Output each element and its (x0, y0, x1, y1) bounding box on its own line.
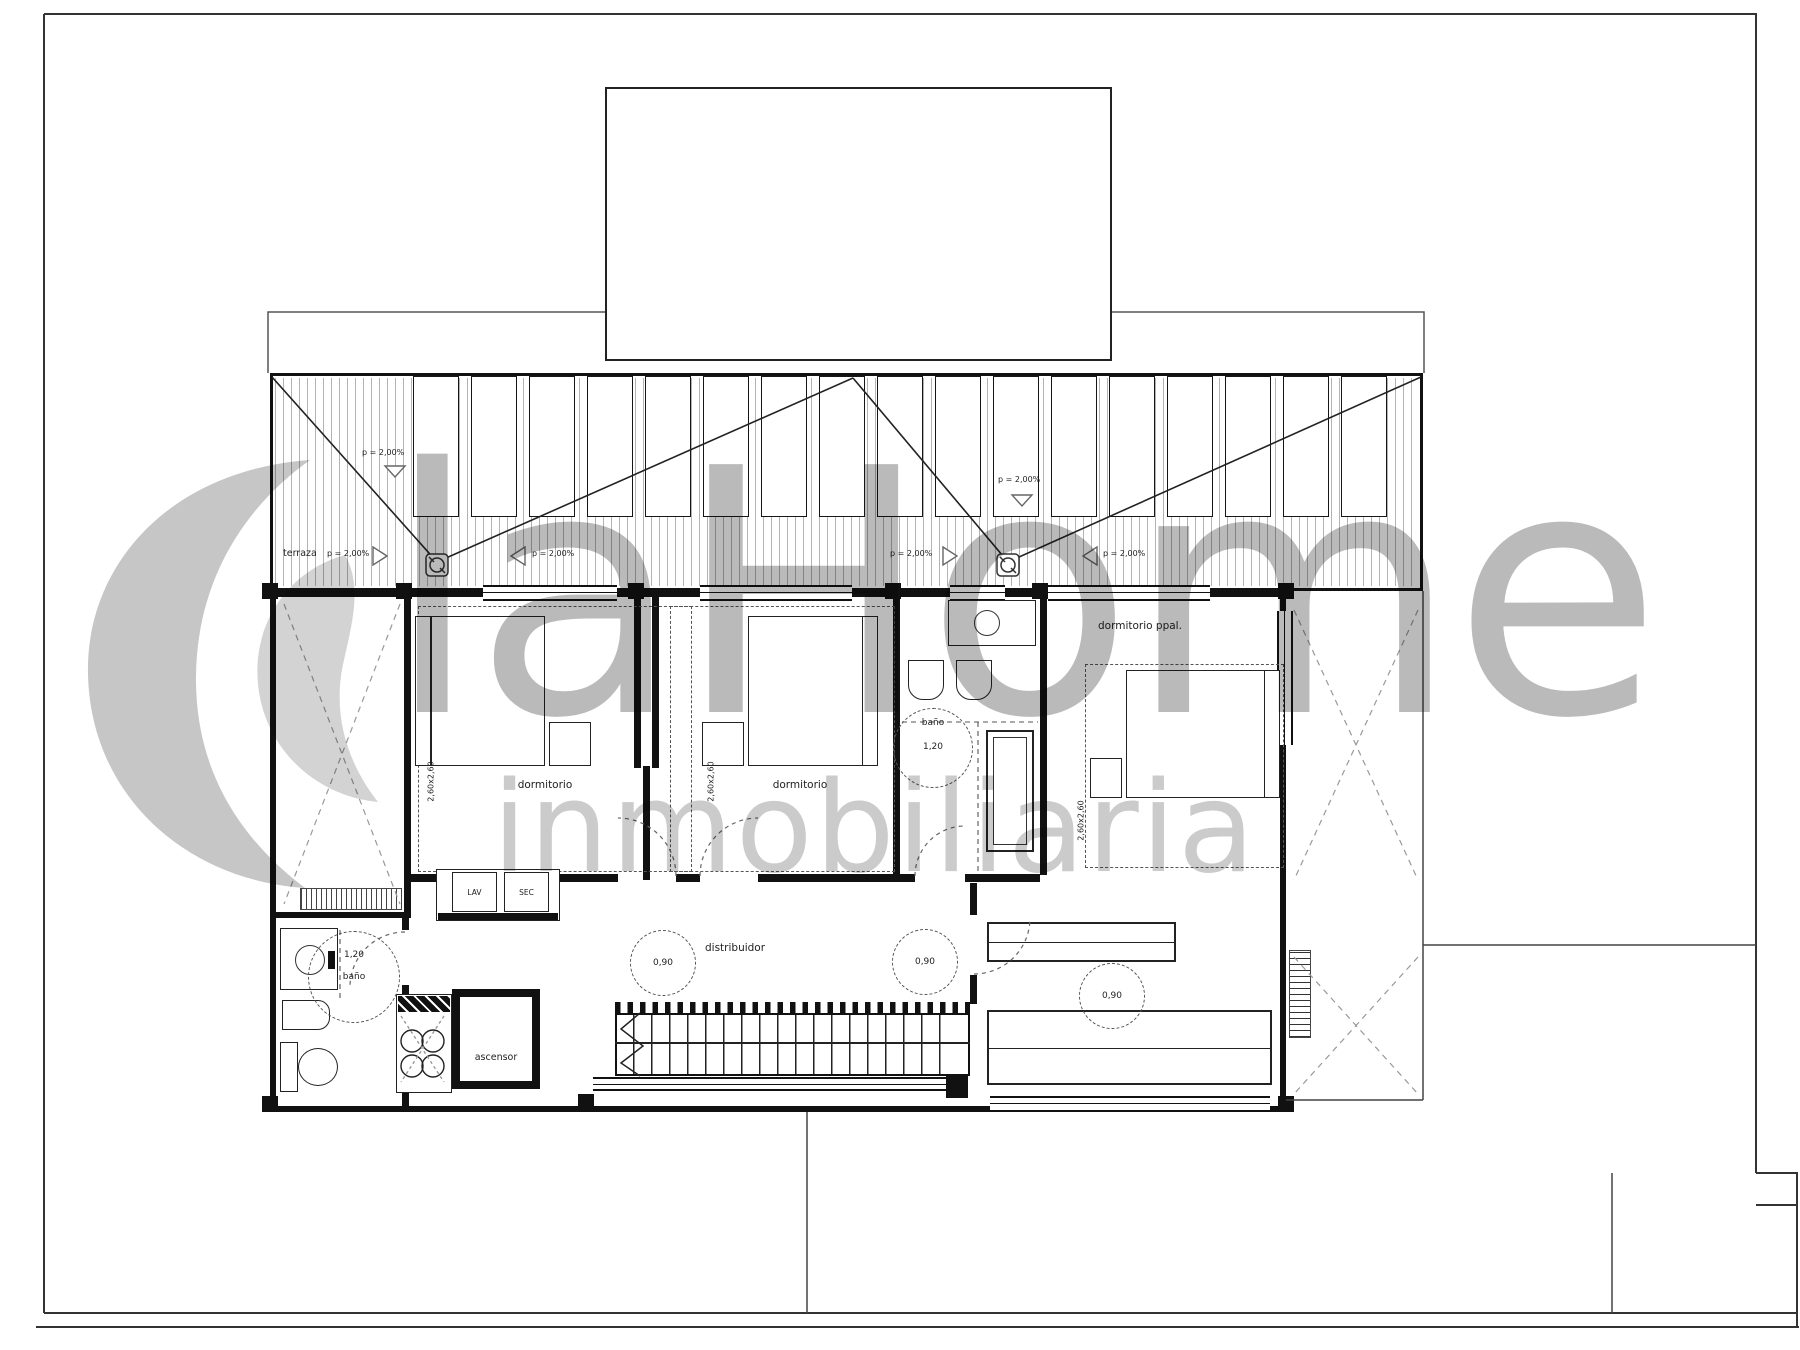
room-label-bedroom2: dormitorio (745, 779, 855, 791)
slope-label: p = 2,00% (362, 448, 404, 457)
slope-label: p = 2,00% (327, 549, 369, 558)
room-label-bath2: baño (322, 972, 386, 982)
slope-label: p = 2,00% (1103, 549, 1145, 558)
clearance-circle-hall-2: 0,90 (892, 929, 958, 995)
room-label-terrace: terraza (283, 548, 317, 559)
clearance-label-bath2: 1,20 (322, 950, 386, 960)
plan-linework (0, 0, 1800, 1350)
shaft-pipes (401, 1016, 444, 1082)
roof-slope-diagonals (272, 377, 1421, 562)
bed-dim-master: 2,60x2,60 (1077, 793, 1086, 849)
clearance-value: 0,90 (653, 958, 673, 968)
room-label-elevator: ascensor (455, 1052, 537, 1063)
clearance-value: 0,90 (1102, 991, 1122, 1001)
room-label-bath1: baño (905, 718, 961, 728)
floor-plan-page: LAV SEC 0,90 0,90 0,90 (0, 0, 1800, 1350)
clearance-circle-dressing: 0,90 (1079, 963, 1145, 1029)
slope-label: p = 2,00% (532, 549, 574, 558)
room-label-master: dormitorio ppal. (1098, 620, 1182, 632)
clearance-value: 0,90 (915, 957, 935, 967)
bed-dim-bedroom1: 2,60x2,60 (427, 754, 436, 810)
void-cross-lines (284, 604, 1418, 1094)
room-label-bedroom1: dormitorio (490, 779, 600, 791)
drain-icon (997, 554, 1019, 576)
drain-icon (426, 554, 448, 576)
slope-label: p = 2,00% (998, 475, 1040, 484)
plot-boundary-lines (36, 14, 1799, 1327)
stair-break-line (621, 1013, 643, 1076)
slope-arrow-icons (373, 466, 1097, 565)
room-label-hall: distribuidor (705, 942, 765, 954)
slope-label: p = 2,00% (890, 549, 932, 558)
clearance-circle-hall-1: 0,90 (630, 930, 696, 996)
bed-dim-bedroom2: 2,60x2,60 (707, 754, 716, 810)
lower-floor-outline (268, 312, 1424, 373)
clearance-label-bath1: 1,20 (905, 742, 961, 752)
